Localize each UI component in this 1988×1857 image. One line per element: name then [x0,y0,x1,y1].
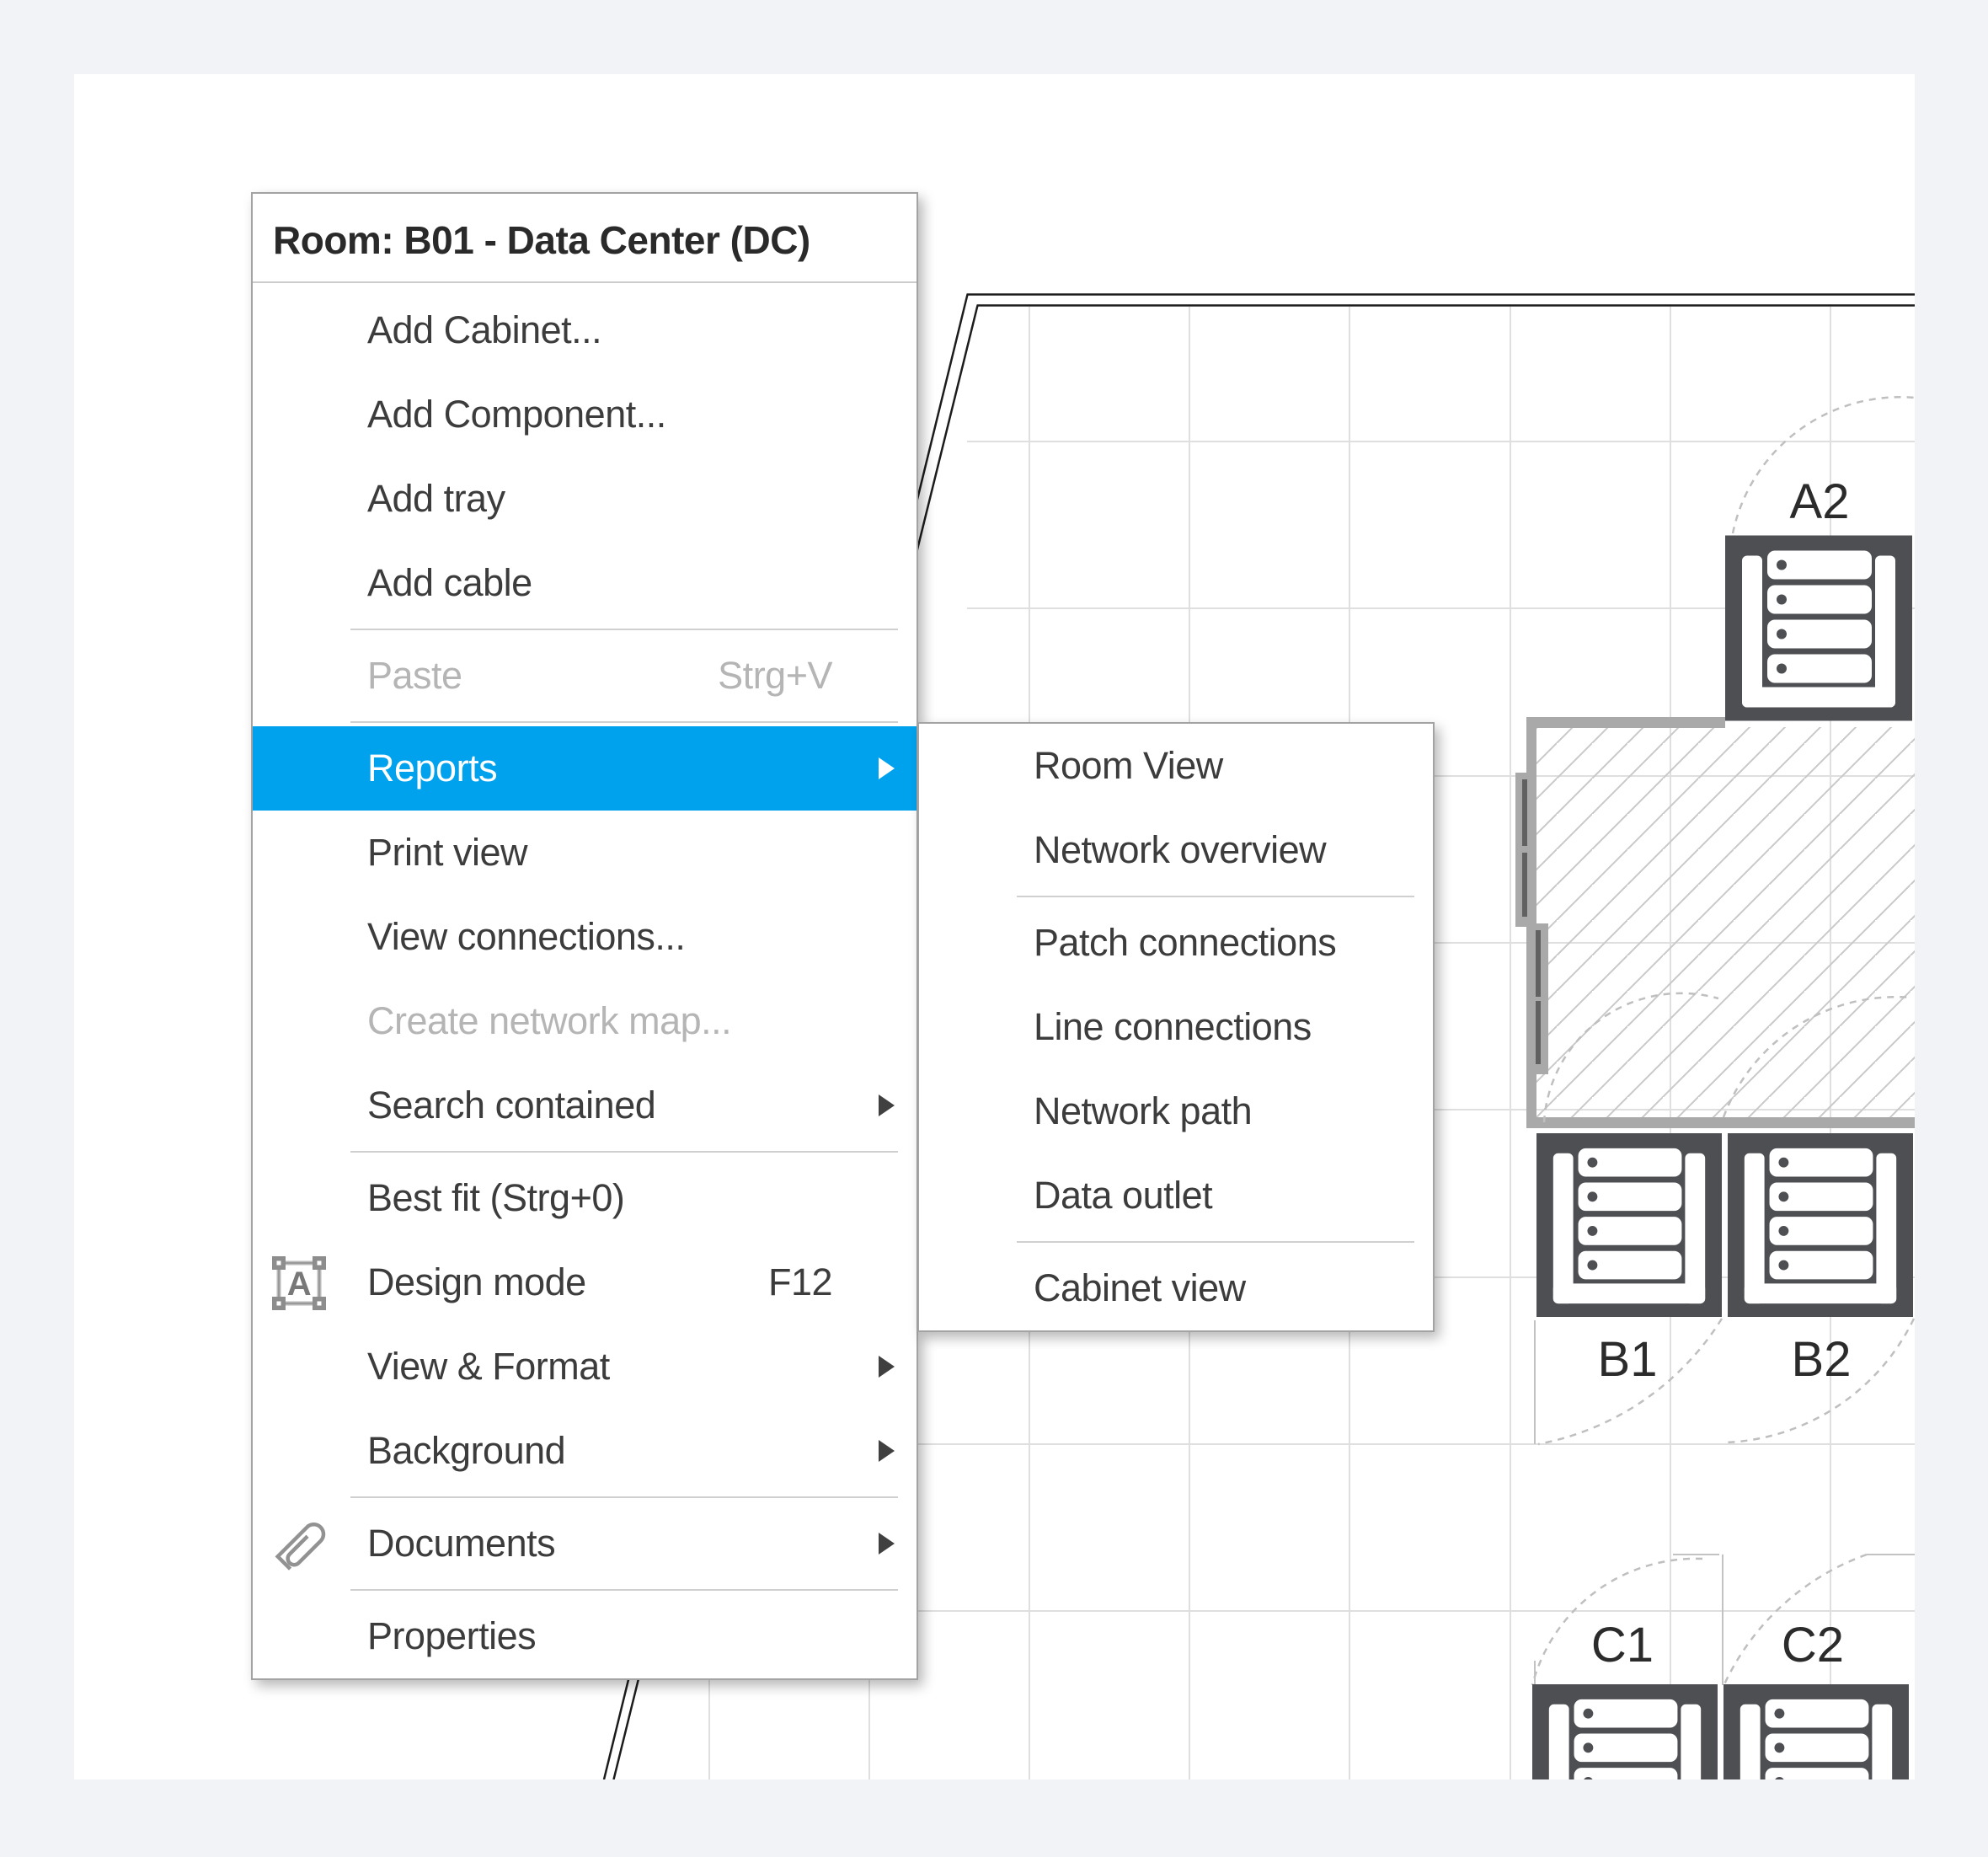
svg-text:C2: C2 [1782,1618,1844,1672]
svg-text:B2: B2 [1792,1332,1852,1387]
svg-text:B1: B1 [1598,1332,1658,1387]
svg-text:C1: C1 [1591,1618,1654,1672]
svg-text:A: A [287,1266,311,1303]
svg-text:A2: A2 [1790,474,1850,529]
